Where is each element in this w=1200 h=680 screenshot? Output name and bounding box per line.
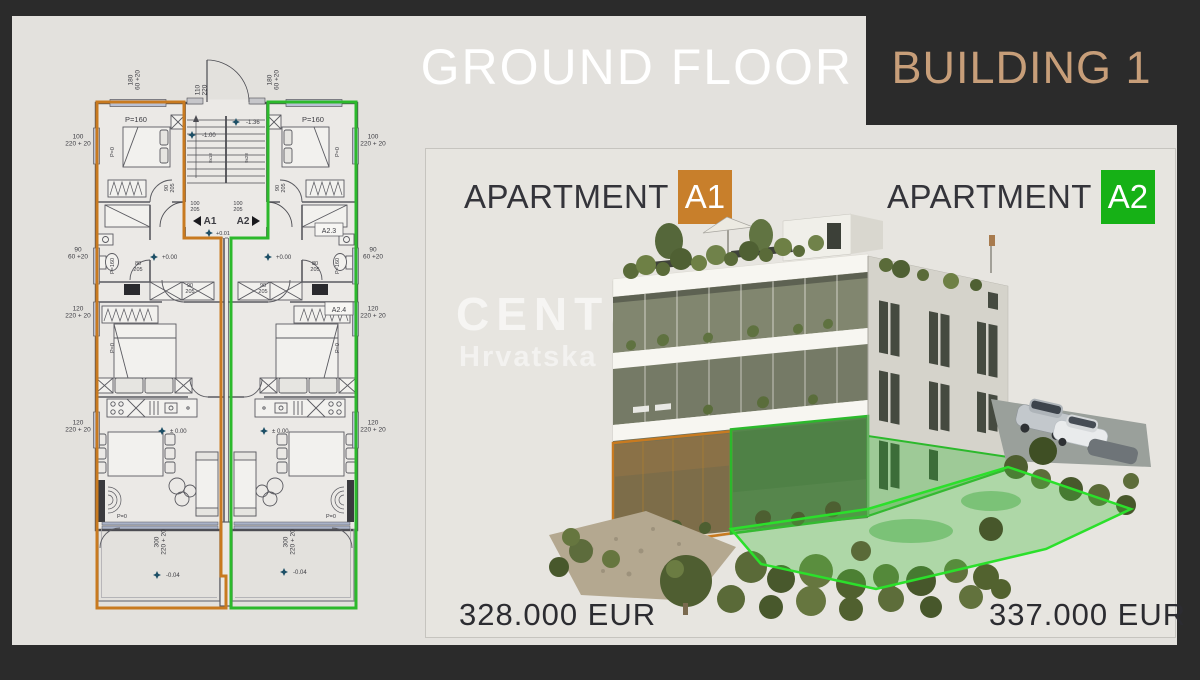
plan-label: P=0 <box>335 343 341 353</box>
plan-label: 9060 +20 <box>68 246 88 260</box>
elevation-marker-icon <box>280 568 288 576</box>
apartments-card: APARTMENT A1 APARTMENT A2 CENTURY 21 Hrv… <box>425 148 1176 638</box>
plan-label: -1.00 <box>202 133 216 139</box>
building-title: BUILDING 1 <box>866 42 1177 94</box>
plan-label: A2 <box>237 216 250 227</box>
plan-label: 18060 +20 <box>266 70 280 90</box>
plan-label: 9x28 <box>244 153 249 163</box>
plan-label: 110220 <box>194 84 208 95</box>
plan-label: -0.04 <box>293 570 307 576</box>
price-a1: 328.000 EUR <box>459 597 656 633</box>
plan-label: P=160 <box>335 258 341 274</box>
plan-label: 18060 +20 <box>127 70 141 90</box>
plan-label: 300220 + 20 <box>153 529 167 555</box>
plan-label: +0.00 <box>162 255 178 261</box>
slide: GROUND FLOOR BUILDING 1 <box>0 0 1200 680</box>
plan-label: 100220 + 20 <box>360 133 386 147</box>
plan-label: P=160 <box>110 258 116 274</box>
plan-label: 100220 + 20 <box>65 133 91 147</box>
price-a2: 337.000 EUR <box>989 597 1186 633</box>
plan-label: 120220 + 20 <box>65 419 91 433</box>
plan-label: 120220 + 20 <box>360 305 386 319</box>
plan-label: P=0 <box>335 147 341 157</box>
plan-label: +0.00 <box>276 255 292 261</box>
plan-label: 300220 + 20 <box>282 529 296 555</box>
facade-front <box>613 254 868 551</box>
plan-label: P=0 <box>117 514 127 520</box>
plan-label: A2.3 <box>322 228 337 235</box>
plan-label: ± 0.00 <box>170 429 187 435</box>
plan-label: P=0 <box>110 343 116 353</box>
plan-label: A1 <box>204 216 217 227</box>
plan-label: 120220 + 20 <box>360 419 386 433</box>
building-render <box>431 199 1175 639</box>
plan-label: +0.01 <box>216 231 230 237</box>
plan-label: 9060 +20 <box>363 246 383 260</box>
plan-label: -0.04 <box>166 573 180 579</box>
plan-label: 120220 + 20 <box>65 305 91 319</box>
plan-label: 100205 <box>233 201 242 213</box>
floor-plan: 18060 +2011022018060 +20P=160P=160100220… <box>50 52 402 646</box>
elevation-marker-icon <box>153 571 161 579</box>
plan-label: ± 0.00 <box>272 429 289 435</box>
plan-label: P=0 <box>110 147 116 157</box>
plan-label: P=0 <box>326 514 336 520</box>
plan-label: P=160 <box>125 115 147 124</box>
plan-label: 8x18 <box>208 153 213 163</box>
plan-label: A2.4 <box>332 307 347 314</box>
plan-label: 100205 <box>190 201 199 213</box>
plan-label: P=160 <box>302 115 324 124</box>
plan-label: -1.36 <box>246 120 260 126</box>
